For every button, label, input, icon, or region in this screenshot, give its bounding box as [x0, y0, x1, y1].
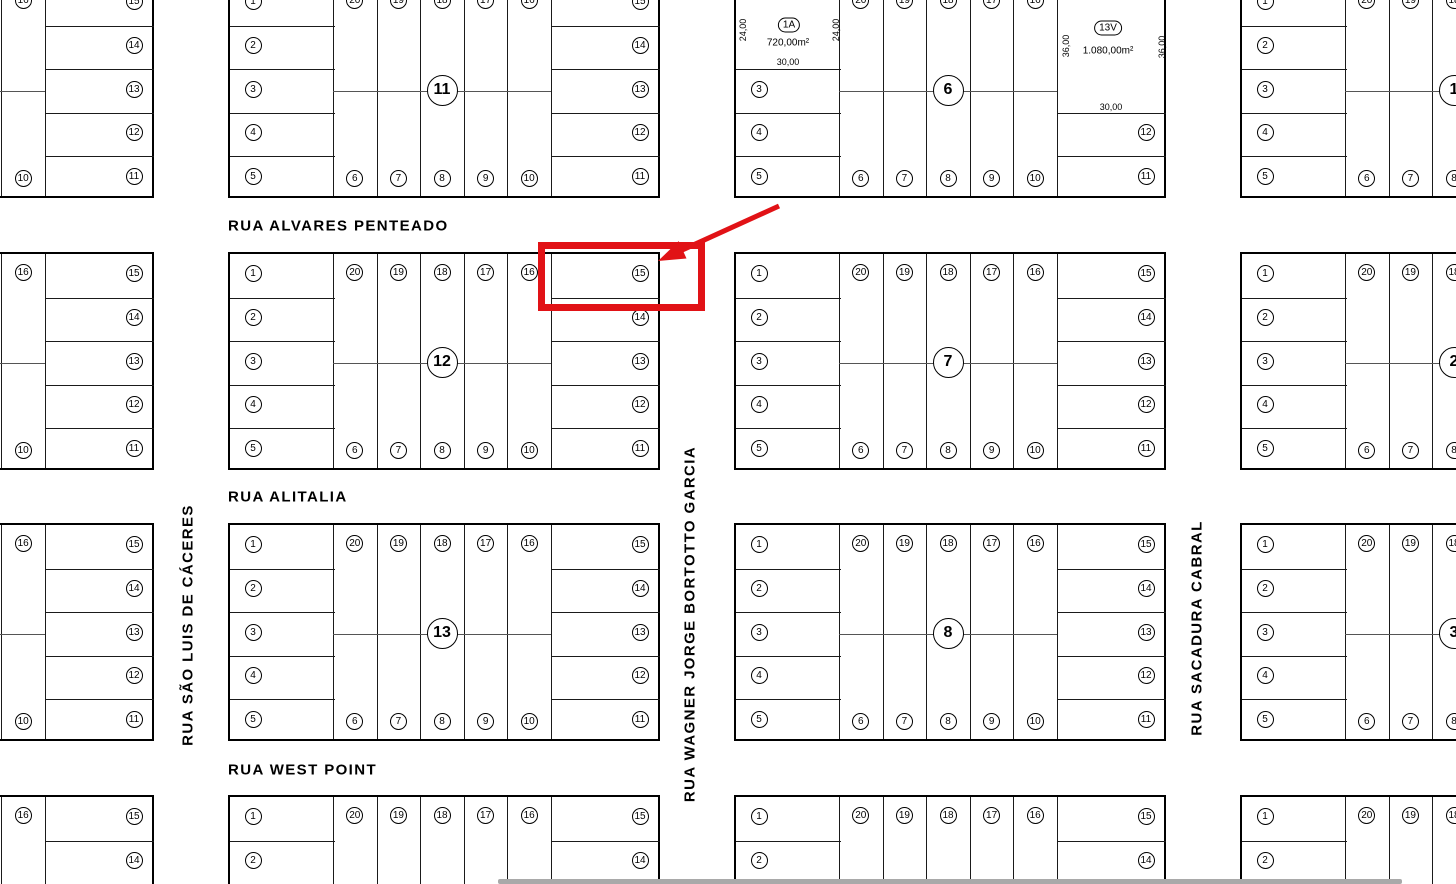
- lot-number: 7: [896, 713, 913, 730]
- lot-divider: [551, 612, 660, 613]
- lot-number: 14: [126, 580, 143, 597]
- lot-number: 20: [346, 0, 363, 9]
- lot-divider: [883, 254, 884, 468]
- lot-number: 3: [1257, 81, 1274, 98]
- lot-number: 8: [940, 713, 957, 730]
- lot-number: 2: [1257, 309, 1274, 326]
- lot-number: 10: [521, 170, 538, 187]
- lot-number: 20: [346, 535, 363, 552]
- lot-number: 3: [751, 353, 768, 370]
- lot-number: 2: [1257, 580, 1274, 597]
- lot-divider: [551, 341, 660, 342]
- lot-number: 13: [126, 81, 143, 98]
- merged-lot-number: 1A: [778, 18, 800, 33]
- lot-number: 4: [1257, 124, 1274, 141]
- lot-number: 8: [434, 442, 451, 459]
- lot-number: 18: [434, 264, 451, 281]
- city-block: 12345151413121120619718817916103: [1240, 523, 1456, 741]
- lot-divider: [839, 525, 840, 739]
- lot-number: 14: [632, 852, 649, 869]
- lot-number: 16: [1027, 807, 1044, 824]
- lot-number: 3: [1257, 353, 1274, 370]
- lot-number: 7: [390, 170, 407, 187]
- lot-divider: [45, 341, 154, 342]
- lot-divider: [230, 612, 335, 613]
- lot-number: 5: [751, 168, 768, 185]
- lot-number: 14: [632, 37, 649, 54]
- lot-divider: [1242, 341, 1347, 342]
- lot-number: 18: [940, 535, 957, 552]
- lot-divider: [1013, 525, 1014, 739]
- lot-number: 6: [1358, 442, 1375, 459]
- lot-divider: [507, 525, 508, 739]
- lot-divider: [1057, 428, 1166, 429]
- lot-number: 16: [1027, 535, 1044, 552]
- lot-number: 18: [434, 807, 451, 824]
- lot-number: 7: [896, 170, 913, 187]
- lot-divider: [1432, 0, 1433, 196]
- city-block: 1234515141312112061971881791610: [228, 795, 660, 884]
- lot-divider: [1057, 0, 1058, 196]
- lot-divider: [1242, 699, 1347, 700]
- lot-number: 20: [1358, 535, 1375, 552]
- street-name-horizontal: RUA ALITALIA: [228, 489, 348, 506]
- lot-divider: [551, 656, 660, 657]
- lot-number: 19: [1402, 535, 1419, 552]
- lot-divider: [736, 569, 841, 570]
- lot-number: 4: [245, 667, 262, 684]
- lot-number: 20: [852, 535, 869, 552]
- lot-divider: [45, 69, 154, 70]
- lot-number: 11: [632, 168, 649, 185]
- street-name-vertical: RUA WAGNER JORGE BORTOTTO GARCIA: [682, 446, 699, 802]
- lot-divider: [839, 254, 840, 468]
- lot-divider: [1242, 298, 1347, 299]
- lot-divider: [230, 69, 335, 70]
- lot-number: 19: [896, 264, 913, 281]
- lot-number: 3: [245, 81, 262, 98]
- lot-divider: [736, 699, 841, 700]
- lot-divider: [926, 797, 927, 884]
- lot-number: 6: [852, 170, 869, 187]
- lot-divider: [1242, 26, 1347, 27]
- lot-number: 19: [390, 264, 407, 281]
- lot-number: 20: [346, 264, 363, 281]
- lot-number: 15: [126, 808, 143, 825]
- lot-divider: [736, 69, 841, 70]
- block-number: 7: [933, 347, 964, 378]
- lot-divider: [464, 525, 465, 739]
- lot-number: 1: [1257, 536, 1274, 553]
- lot-number: 17: [477, 535, 494, 552]
- lot-divider: [45, 612, 154, 613]
- lot-number: 13: [126, 353, 143, 370]
- lot-divider: [230, 699, 335, 700]
- lot-divider: [551, 69, 660, 70]
- lot-divider: [45, 298, 154, 299]
- lot-divider: [230, 113, 335, 114]
- lot-number: 6: [852, 442, 869, 459]
- lot-area-label: 1.080,00m²: [1083, 46, 1134, 57]
- lot-number: 10: [521, 713, 538, 730]
- lot-number: 19: [896, 0, 913, 9]
- lot-number: 10: [521, 442, 538, 459]
- lot-divider: [736, 385, 841, 386]
- lot-divider: [1432, 254, 1433, 468]
- lot-number: 15: [1138, 808, 1155, 825]
- lot-number: 16: [1027, 264, 1044, 281]
- lot-number: 4: [751, 667, 768, 684]
- lot-number: 1: [751, 536, 768, 553]
- lot-number: 18: [1446, 807, 1456, 824]
- lot-divider: [551, 156, 660, 157]
- lot-number: 8: [940, 170, 957, 187]
- lot-number: 4: [245, 396, 262, 413]
- block-number: 12: [427, 347, 458, 378]
- lot-number: 20: [346, 807, 363, 824]
- lot-divider: [45, 254, 46, 468]
- lot-number: 8: [940, 442, 957, 459]
- lot-number: 10: [15, 713, 32, 730]
- lot-number: 18: [1446, 264, 1456, 281]
- lot-number: 15: [1138, 265, 1155, 282]
- lot-number: 1: [245, 0, 262, 10]
- lot-divider: [1242, 156, 1347, 157]
- lot-divider: [970, 254, 971, 468]
- block-number: 1: [1439, 75, 1456, 106]
- lot-number: 11: [632, 440, 649, 457]
- lot-number: 2: [1257, 37, 1274, 54]
- lot-number: 1: [751, 265, 768, 282]
- city-block: 1234515141312112061971881791610: [0, 523, 154, 741]
- lot-divider: [420, 0, 421, 196]
- lot-number: 7: [1402, 170, 1419, 187]
- lot-divider: [1432, 797, 1433, 884]
- lot-divider: [420, 254, 421, 468]
- lot-number: 5: [245, 168, 262, 185]
- lot-number: 2: [751, 580, 768, 597]
- lot-number: 7: [1402, 442, 1419, 459]
- lot-number: 5: [1257, 440, 1274, 457]
- lot-number: 2: [245, 37, 262, 54]
- lot-number: 18: [434, 0, 451, 9]
- lot-divider: [1057, 569, 1166, 570]
- lot-number: 7: [896, 442, 913, 459]
- lot-number: 12: [126, 124, 143, 141]
- lot-number: 5: [245, 440, 262, 457]
- lot-divider: [551, 26, 660, 27]
- lot-divider: [464, 254, 465, 468]
- lot-divider: [970, 797, 971, 884]
- lot-number: 19: [390, 535, 407, 552]
- lot-divider: [736, 612, 841, 613]
- lot-number: 2: [245, 580, 262, 597]
- lot-number: 5: [1257, 168, 1274, 185]
- lot-number: 13: [1138, 624, 1155, 641]
- lot-divider: [1057, 156, 1166, 157]
- lot-divider: [1057, 525, 1058, 739]
- lot-number: 1: [245, 536, 262, 553]
- lot-number: 19: [390, 807, 407, 824]
- city-block: 12345151413121120619718817916107: [734, 252, 1166, 470]
- lot-dimension-left: 24,00: [738, 19, 748, 42]
- lot-divider: [45, 428, 154, 429]
- lot-number: 18: [940, 807, 957, 824]
- lot-divider: [45, 0, 46, 196]
- lot-number: 18: [940, 264, 957, 281]
- lot-number: 6: [346, 713, 363, 730]
- lot-number: 11: [1138, 440, 1155, 457]
- lot-divider: [377, 797, 378, 884]
- lot-divider: [551, 428, 660, 429]
- lot-number: 16: [15, 535, 32, 552]
- lot-number: 18: [434, 535, 451, 552]
- lot-dimension-right: 24,00: [831, 19, 841, 42]
- lot-divider: [1242, 612, 1347, 613]
- highlight-rectangle: [538, 242, 705, 311]
- lot-divider: [1013, 797, 1014, 884]
- lot-number: 16: [521, 264, 538, 281]
- lot-area-label: 720,00m²: [767, 38, 809, 49]
- block-mid-line: [0, 363, 45, 364]
- city-block: 12345151413121120619718817916108: [734, 523, 1166, 741]
- lot-divider: [377, 0, 378, 196]
- lot-number: 19: [1402, 807, 1419, 824]
- lot-number: 6: [852, 713, 869, 730]
- lot-number: 20: [1358, 264, 1375, 281]
- lot-number: 10: [1027, 170, 1044, 187]
- lot-divider: [333, 525, 334, 739]
- lot-divider: [551, 525, 552, 739]
- highlight-arrow: [0, 0, 1456, 884]
- lot-divider: [230, 385, 335, 386]
- lot-number: 16: [521, 807, 538, 824]
- lot-number: 4: [751, 396, 768, 413]
- lot-number: 16: [15, 264, 32, 281]
- lot-number: 14: [126, 309, 143, 326]
- lot-number: 16: [1027, 0, 1044, 9]
- lot-number: 10: [15, 170, 32, 187]
- lot-number: 17: [983, 535, 1000, 552]
- lot-number: 13: [632, 624, 649, 641]
- lot-number: 2: [245, 309, 262, 326]
- lot-divider: [1242, 841, 1347, 842]
- block-mid-line: [0, 634, 45, 635]
- block-number: 8: [933, 618, 964, 649]
- lot-divider: [883, 525, 884, 739]
- horizontal-scrollbar-thumb[interactable]: [498, 879, 1402, 884]
- lot-divider: [1057, 612, 1166, 613]
- lot-number: 19: [896, 807, 913, 824]
- lot-divider: [230, 26, 335, 27]
- lot-number: 20: [852, 807, 869, 824]
- lot-number: 18: [1446, 0, 1456, 9]
- lot-number: 15: [126, 0, 143, 10]
- lot-divider: [45, 113, 154, 114]
- lot-number: 13: [126, 624, 143, 641]
- lot-divider: [230, 298, 335, 299]
- lot-number: 16: [521, 0, 538, 9]
- city-block: 12345151413121120619718817916102: [1240, 252, 1456, 470]
- lot-number: 2: [245, 852, 262, 869]
- lot-divider: [736, 156, 841, 157]
- lot-divider: [230, 569, 335, 570]
- lot-number: 18: [1446, 535, 1456, 552]
- lot-number: 12: [126, 667, 143, 684]
- lot-number: 19: [1402, 0, 1419, 9]
- lot-number: 14: [632, 580, 649, 597]
- lot-divider: [45, 699, 154, 700]
- lot-number: 3: [245, 353, 262, 370]
- lot-divider: [464, 797, 465, 884]
- lot-number: 17: [983, 0, 1000, 9]
- lot-divider: [1242, 385, 1347, 386]
- lot-number: 13: [1138, 353, 1155, 370]
- lot-number: 14: [1138, 852, 1155, 869]
- city-block: 1234515141312112061971881791610: [1240, 795, 1456, 884]
- lot-number: 12: [1138, 667, 1155, 684]
- lot-number: 11: [1138, 711, 1155, 728]
- lot-dimension-right: 36,00: [1157, 36, 1167, 59]
- lot-divider: [1, 254, 2, 468]
- lot-number: 17: [983, 807, 1000, 824]
- lot-number: 11: [126, 711, 143, 728]
- lot-number: 17: [477, 807, 494, 824]
- lot-number: 13: [632, 353, 649, 370]
- lot-divider: [1013, 254, 1014, 468]
- lot-divider: [420, 797, 421, 884]
- lot-divider: [736, 428, 841, 429]
- lot-number: 6: [346, 170, 363, 187]
- lot-divider: [507, 254, 508, 468]
- street-name-horizontal: RUA ALVARES PENTEADO: [228, 218, 449, 235]
- lot-number: 14: [1138, 580, 1155, 597]
- lot-number: 5: [245, 711, 262, 728]
- lot-number: 12: [632, 396, 649, 413]
- lot-number: 14: [632, 309, 649, 326]
- lot-divider: [736, 656, 841, 657]
- lot-number: 7: [390, 713, 407, 730]
- map-canvas: 1234515141312112061971881791610123451514…: [0, 0, 1456, 884]
- lot-divider: [736, 113, 841, 114]
- lot-divider: [1389, 797, 1390, 884]
- lot-divider: [507, 0, 508, 196]
- lot-number: 13: [632, 81, 649, 98]
- lot-number: 15: [126, 265, 143, 282]
- lot-number: 15: [632, 536, 649, 553]
- lot-divider: [230, 656, 335, 657]
- lot-divider: [507, 797, 508, 884]
- lot-divider: [1057, 385, 1166, 386]
- lot-divider: [1242, 569, 1347, 570]
- lot-number: 11: [632, 711, 649, 728]
- lot-divider: [1345, 525, 1346, 739]
- lot-number: 3: [1257, 624, 1274, 641]
- lot-dimension-bottom: 30,00: [777, 57, 800, 67]
- lot-divider: [1242, 113, 1347, 114]
- lot-divider: [551, 569, 660, 570]
- lot-number: 8: [1446, 713, 1456, 730]
- lot-number: 4: [1257, 667, 1274, 684]
- lot-divider: [1, 797, 2, 884]
- lot-divider: [1432, 525, 1433, 739]
- lot-number: 9: [983, 713, 1000, 730]
- lot-number: 18: [940, 0, 957, 9]
- lot-divider: [45, 656, 154, 657]
- lot-number: 20: [1358, 0, 1375, 9]
- lot-number: 1: [1257, 808, 1274, 825]
- lot-divider: [1, 525, 2, 739]
- lot-number: 12: [632, 124, 649, 141]
- block-number: 2: [1439, 347, 1456, 378]
- lot-number: 12: [632, 667, 649, 684]
- lot-divider: [1389, 525, 1390, 739]
- lot-number: 11: [126, 440, 143, 457]
- lot-divider: [551, 113, 660, 114]
- lot-number: 7: [390, 442, 407, 459]
- lot-number: 12: [1138, 124, 1155, 141]
- lot-divider: [551, 699, 660, 700]
- lot-divider: [1345, 0, 1346, 196]
- lot-number: 8: [434, 713, 451, 730]
- lot-number: 17: [983, 264, 1000, 281]
- lot-number: 5: [1257, 711, 1274, 728]
- lot-divider: [1057, 656, 1166, 657]
- lot-number: 1: [245, 265, 262, 282]
- lot-number: 4: [1257, 396, 1274, 413]
- lot-number: 11: [1138, 168, 1155, 185]
- lot-divider: [883, 797, 884, 884]
- lot-divider: [45, 385, 154, 386]
- lot-number: 6: [1358, 713, 1375, 730]
- lot-dimension-bottom: 30,00: [1100, 102, 1123, 112]
- lot-divider: [1057, 298, 1166, 299]
- lot-number: 17: [477, 0, 494, 9]
- lot-number: 12: [126, 396, 143, 413]
- city-block: 123451514131211206197188179161011: [228, 0, 660, 198]
- lot-number: 9: [477, 713, 494, 730]
- lot-number: 3: [751, 624, 768, 641]
- lot-divider: [1057, 254, 1058, 468]
- lot-number: 1: [1257, 265, 1274, 282]
- lot-number: 14: [1138, 309, 1155, 326]
- lot-number: 4: [245, 124, 262, 141]
- lot-number: 12: [1138, 396, 1155, 413]
- lot-divider: [1389, 0, 1390, 196]
- lot-number: 19: [1402, 264, 1419, 281]
- lot-number: 19: [390, 0, 407, 9]
- city-block: 1234515141312112061971881791610: [734, 795, 1166, 884]
- lot-number: 10: [1027, 713, 1044, 730]
- city-block: 3451211206197188179161061A720,00m²30,002…: [734, 0, 1166, 198]
- lot-number: 20: [1358, 807, 1375, 824]
- lot-divider: [333, 254, 334, 468]
- lot-number: 7: [1402, 713, 1419, 730]
- lot-number: 19: [896, 535, 913, 552]
- block-mid-line: [0, 91, 45, 92]
- city-block: 1234515141312112061971881791610: [0, 0, 154, 198]
- lot-number: 20: [852, 264, 869, 281]
- lot-divider: [1389, 254, 1390, 468]
- lot-divider: [926, 0, 927, 196]
- lot-number: 20: [852, 0, 869, 9]
- street-name-vertical: RUA SACADURA CABRAL: [1189, 520, 1206, 735]
- block-number: 11: [427, 75, 458, 106]
- block-number: 13: [427, 618, 458, 649]
- lot-divider: [883, 0, 884, 196]
- lot-divider: [551, 385, 660, 386]
- lot-divider: [1, 0, 2, 196]
